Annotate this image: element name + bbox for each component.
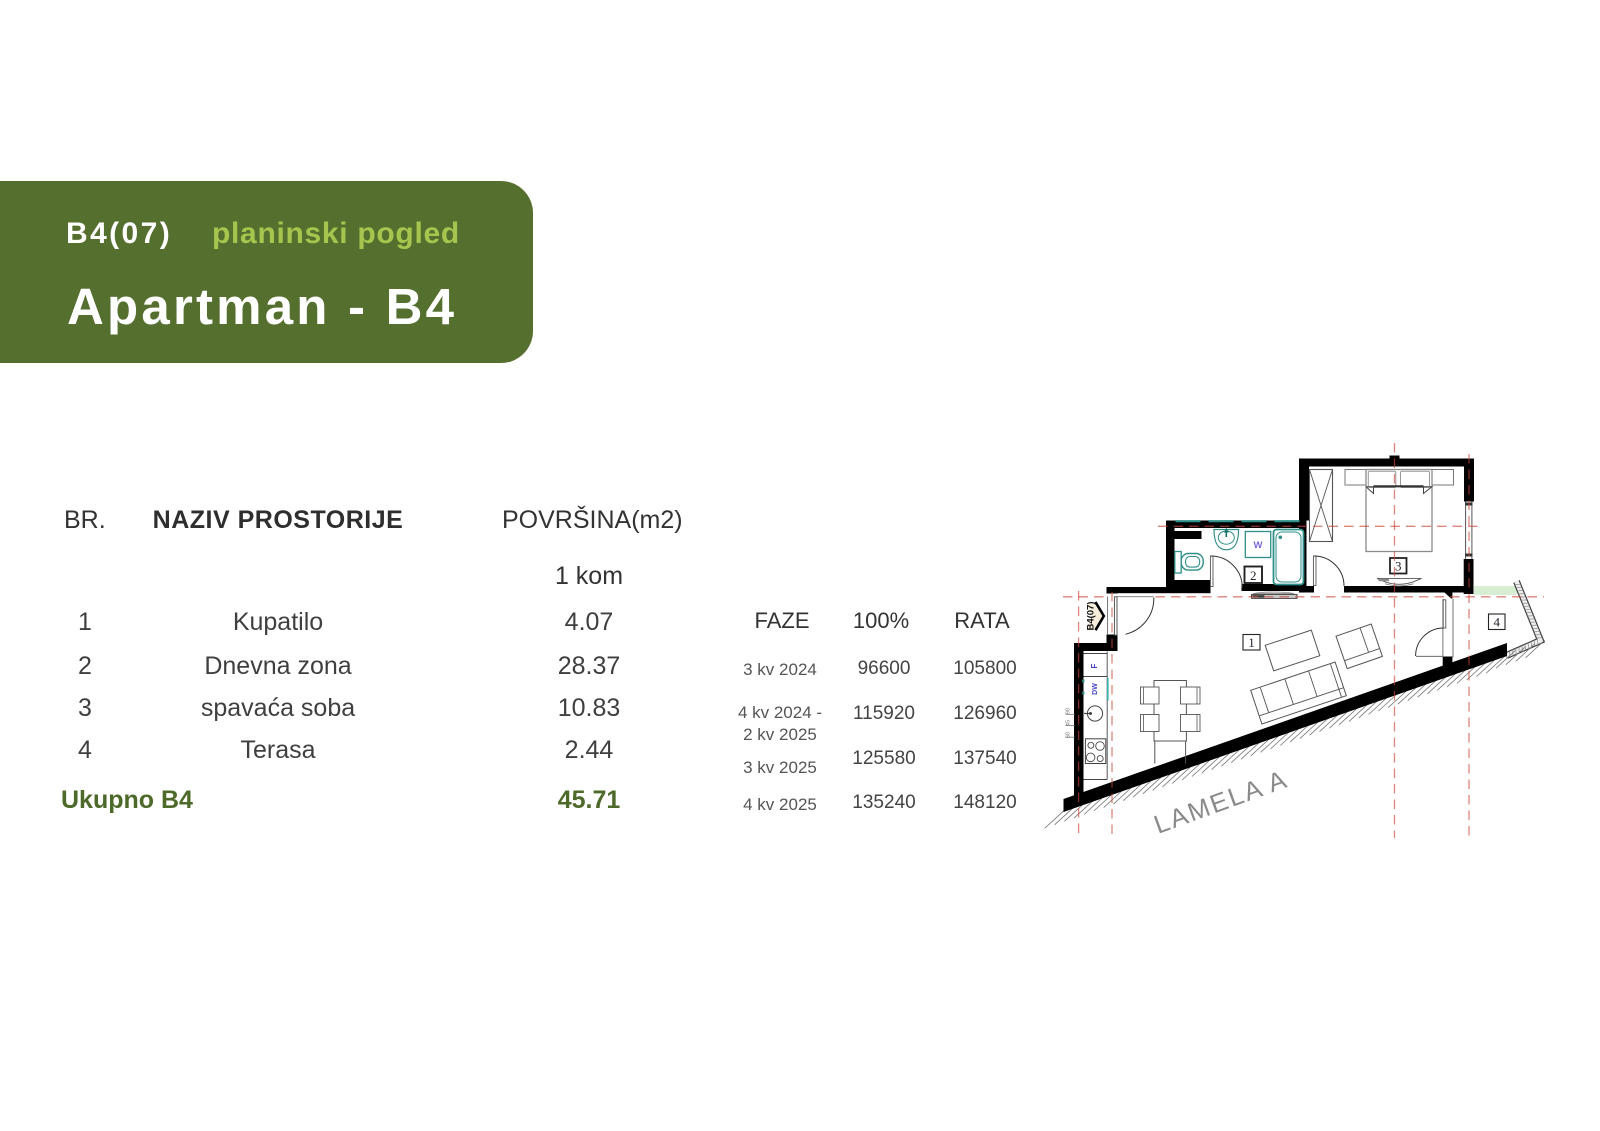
svg-text:1: 1 [1248, 635, 1255, 650]
svg-text:60: 60 [1066, 732, 1072, 738]
svg-text:F: F [1090, 663, 1099, 668]
svg-text:4: 4 [1494, 614, 1501, 629]
svg-text:LAMELA A: LAMELA A [1150, 763, 1292, 839]
svg-text:2: 2 [1250, 568, 1257, 583]
svg-text:B4(07): B4(07) [1086, 601, 1097, 630]
svg-text:DW: DW [1092, 683, 1099, 695]
svg-text:W: W [1254, 540, 1263, 551]
svg-text:3: 3 [1395, 558, 1402, 573]
svg-text:45: 45 [1066, 720, 1072, 726]
svg-text:90: 90 [1066, 708, 1072, 714]
